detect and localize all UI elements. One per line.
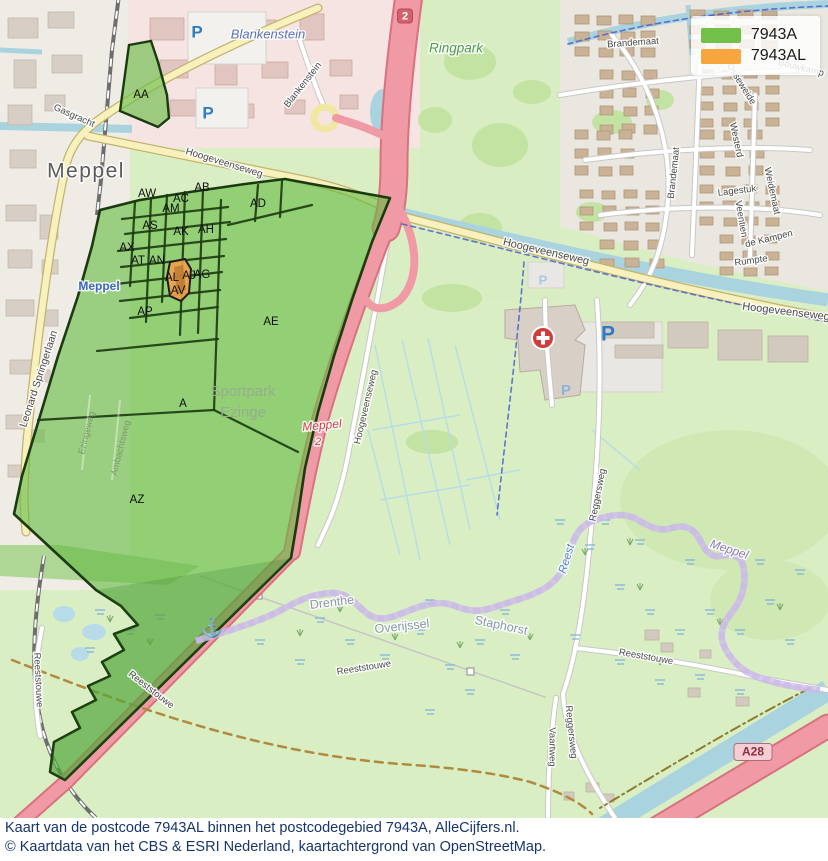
legend-swatch-green bbox=[701, 28, 741, 43]
label-sportpark-1: Sportpark bbox=[210, 383, 276, 400]
building bbox=[580, 207, 593, 215]
legend-item-7943a: 7943A bbox=[701, 26, 806, 44]
legend-swatch-orange bbox=[701, 49, 741, 64]
building bbox=[720, 252, 733, 260]
building bbox=[625, 222, 638, 230]
area-label-aw: AW bbox=[138, 188, 156, 200]
label-ringpark: Ringpark bbox=[429, 41, 484, 56]
building bbox=[14, 60, 36, 88]
building bbox=[641, 16, 655, 25]
label-exit-2: 2 bbox=[314, 436, 321, 448]
legend-label: 7943A bbox=[751, 26, 797, 44]
building bbox=[736, 697, 749, 706]
building bbox=[646, 191, 659, 199]
area-label-ak: AK bbox=[173, 226, 189, 238]
svg-text:2: 2 bbox=[402, 10, 408, 22]
legend-label: 7943AL bbox=[751, 47, 806, 65]
building bbox=[8, 18, 38, 38]
area-label-ab: AB bbox=[194, 182, 210, 194]
building bbox=[724, 103, 737, 111]
building bbox=[575, 149, 588, 158]
area-label-ad: AD bbox=[250, 198, 266, 210]
anchor-icon: ⚓ bbox=[200, 616, 224, 639]
area-label-at: AT bbox=[131, 255, 145, 267]
building bbox=[646, 223, 659, 231]
building bbox=[624, 241, 638, 250]
building bbox=[600, 240, 614, 249]
building bbox=[700, 650, 711, 658]
building bbox=[615, 345, 663, 358]
building bbox=[8, 105, 32, 125]
label-vaartweg: Vaartweg bbox=[546, 727, 557, 766]
building bbox=[10, 360, 32, 374]
building bbox=[150, 18, 184, 40]
label-meppel-station: Meppel bbox=[78, 279, 119, 293]
building bbox=[700, 130, 714, 139]
building bbox=[602, 191, 615, 199]
building bbox=[580, 190, 593, 198]
building bbox=[724, 218, 737, 226]
area-label-ae: AE bbox=[263, 316, 279, 328]
building bbox=[766, 103, 779, 111]
building bbox=[599, 167, 612, 176]
map-canvas: PPPPP⚓2A28 AAAWABACAMADASAKAHAXATANALAJA… bbox=[0, 0, 828, 818]
parking-icon: P bbox=[601, 323, 615, 346]
building bbox=[52, 55, 82, 73]
caption-line-2: © Kaartdata van het CBS & ESRI Nederland… bbox=[5, 838, 825, 857]
road-badge-2: 2 bbox=[398, 9, 413, 23]
building bbox=[600, 70, 613, 79]
road-badge-a28: A28 bbox=[734, 744, 772, 761]
building bbox=[720, 235, 733, 243]
area-label-av: AV bbox=[171, 285, 186, 297]
area-label-as: AS bbox=[142, 220, 158, 232]
legend-item-7943al: 7943AL bbox=[701, 47, 806, 65]
building bbox=[8, 250, 32, 268]
area-label-al: AL bbox=[165, 272, 180, 284]
building bbox=[644, 125, 657, 134]
parking-icon: P bbox=[561, 382, 571, 399]
svg-text:A28: A28 bbox=[742, 745, 764, 759]
building bbox=[575, 47, 589, 56]
area-label-an: AN bbox=[149, 255, 165, 267]
building bbox=[330, 60, 352, 76]
building bbox=[340, 95, 358, 109]
building bbox=[624, 107, 637, 116]
building bbox=[766, 218, 779, 226]
building bbox=[726, 167, 740, 176]
building bbox=[645, 630, 659, 640]
building bbox=[623, 88, 636, 97]
label-sportpark-2: Ezinge bbox=[220, 404, 266, 421]
area-label-ap: AP bbox=[137, 306, 153, 318]
building bbox=[700, 87, 713, 95]
caption: Kaart van de postcode 7943AL binnen het … bbox=[5, 819, 825, 857]
building bbox=[10, 150, 36, 168]
building bbox=[625, 258, 639, 267]
parking-icon: P bbox=[539, 272, 548, 287]
building bbox=[700, 119, 713, 127]
building bbox=[620, 166, 633, 175]
building bbox=[700, 102, 713, 110]
building bbox=[622, 71, 635, 80]
parking-icon: P bbox=[202, 103, 213, 122]
area-label-aa: AA bbox=[133, 89, 149, 101]
building bbox=[768, 336, 808, 362]
hospital-icon bbox=[532, 327, 554, 349]
building bbox=[597, 16, 611, 25]
building bbox=[597, 131, 610, 140]
building bbox=[575, 166, 588, 175]
building bbox=[575, 15, 589, 24]
building bbox=[575, 130, 588, 139]
building bbox=[766, 86, 779, 94]
area-label-am: AM bbox=[162, 203, 179, 215]
building bbox=[661, 643, 673, 652]
area-label-ag: AG bbox=[194, 269, 211, 281]
building bbox=[688, 688, 700, 697]
map-legend: 7943A 7943AL bbox=[691, 16, 820, 75]
building bbox=[6, 205, 36, 221]
building bbox=[723, 86, 736, 94]
parking-icon: P bbox=[191, 22, 202, 41]
area-label-az: AZ bbox=[130, 494, 145, 506]
building bbox=[619, 130, 632, 139]
building bbox=[700, 185, 713, 193]
map-screenshot: PPPPP⚓2A28 AAAWABACAMADASAKAHAXATANALAJA… bbox=[0, 0, 828, 861]
building bbox=[765, 267, 778, 275]
building bbox=[6, 300, 34, 316]
building bbox=[766, 118, 779, 126]
area-label-a: A bbox=[179, 398, 187, 410]
building bbox=[48, 12, 74, 28]
building bbox=[668, 322, 708, 348]
building bbox=[744, 268, 757, 276]
building bbox=[619, 15, 633, 24]
building bbox=[720, 267, 733, 275]
label-meppel-city: Meppel bbox=[47, 160, 125, 183]
label-blankenstein-place: Blankenstein bbox=[231, 26, 305, 41]
building bbox=[641, 48, 655, 57]
caption-line-1: Kaart van de postcode 7943AL binnen het … bbox=[5, 819, 825, 838]
building bbox=[700, 166, 714, 175]
building bbox=[718, 330, 762, 360]
area-label-ah: AH bbox=[198, 224, 214, 236]
building bbox=[580, 222, 593, 230]
building bbox=[604, 223, 617, 231]
building bbox=[700, 217, 713, 225]
building bbox=[624, 190, 637, 198]
building bbox=[766, 252, 779, 260]
building bbox=[644, 70, 657, 79]
building bbox=[600, 106, 613, 115]
area-label-ax: AX bbox=[119, 242, 135, 254]
